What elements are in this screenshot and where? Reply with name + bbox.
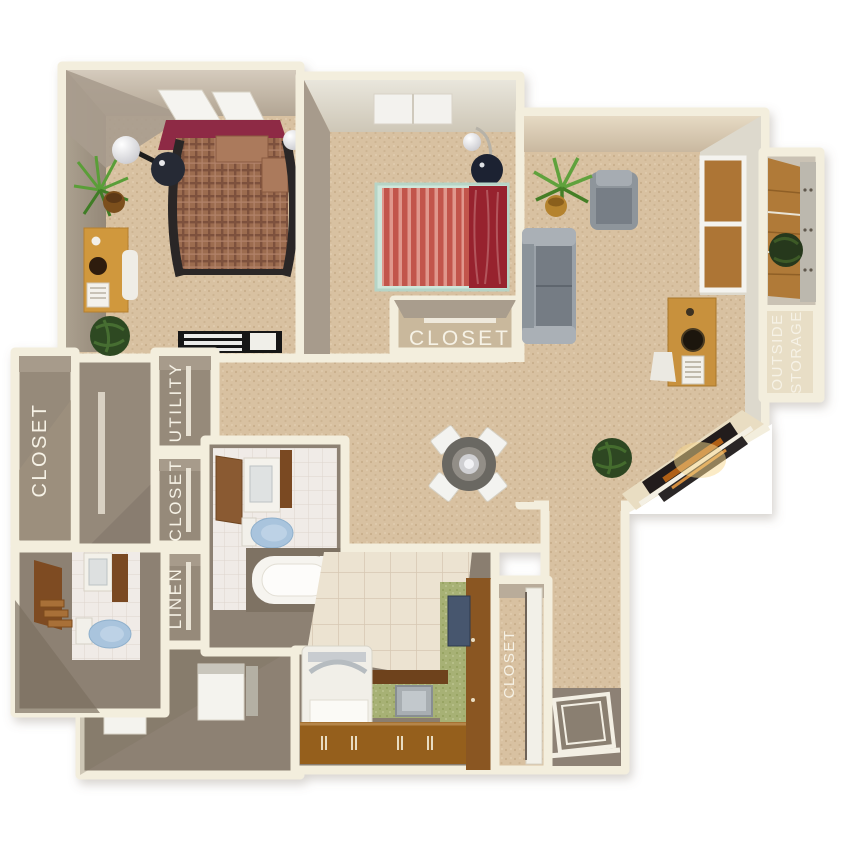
toilet: [242, 518, 293, 548]
floor-plant: [592, 438, 632, 478]
bed-2: [376, 184, 508, 290]
closet-left: CLOSET: [15, 352, 75, 545]
bedroom2-closet: CLOSET: [394, 300, 516, 352]
bathroom-2: [15, 548, 165, 713]
closet-bedroom2-label: CLOSET: [409, 327, 511, 350]
mirror-cabinet: [112, 554, 128, 602]
armchair: [590, 170, 638, 230]
closet-left-label: CLOSET: [29, 402, 51, 497]
bathroom1-door: [216, 456, 242, 524]
toilet: [76, 618, 131, 648]
front-door: [548, 694, 620, 756]
floor-plan-canvas: CLOSET: [0, 0, 844, 844]
kitchen: [295, 548, 495, 770]
outside-storage: OUTSIDE STORAGE: [763, 152, 820, 398]
sofa: [522, 228, 576, 344]
bedroom-1: [62, 66, 303, 358]
entry-closet: CLOSET: [495, 580, 548, 770]
floor-plan: CLOSET: [0, 0, 844, 844]
counter-front-edge: [370, 670, 448, 684]
utility-label: UTILITY: [166, 362, 185, 443]
bed-1: [158, 120, 294, 276]
mirror-cabinet: [280, 450, 292, 508]
window: [374, 94, 452, 124]
cabinet-panel: [246, 666, 258, 716]
floor-plant: [90, 316, 130, 356]
base-cabinets: [300, 722, 466, 764]
dryer: [198, 664, 244, 720]
kitchen-sink: [396, 686, 432, 716]
entry-hall: [545, 499, 625, 770]
window-right: [702, 158, 744, 290]
desk-chair: [122, 250, 138, 300]
outside-storage-label-line2: STORAGE: [788, 310, 805, 394]
utility-closet: UTILITY: [155, 352, 215, 450]
closet-hall-label: CLOSET: [166, 458, 185, 541]
outside-storage-label-panel: OUTSIDE STORAGE: [764, 308, 816, 396]
outside-storage-label-line1: OUTSIDE: [769, 313, 786, 390]
bedroom-2: CLOSET: [300, 76, 520, 358]
desk-chair: [650, 352, 676, 382]
refrigerator: [448, 596, 470, 646]
sliding-door: [526, 588, 542, 764]
stove: [302, 646, 372, 728]
entry-closet-label: CLOSET: [501, 629, 518, 698]
storage-shelving: [800, 162, 816, 302]
vanity-sink: [244, 450, 292, 512]
